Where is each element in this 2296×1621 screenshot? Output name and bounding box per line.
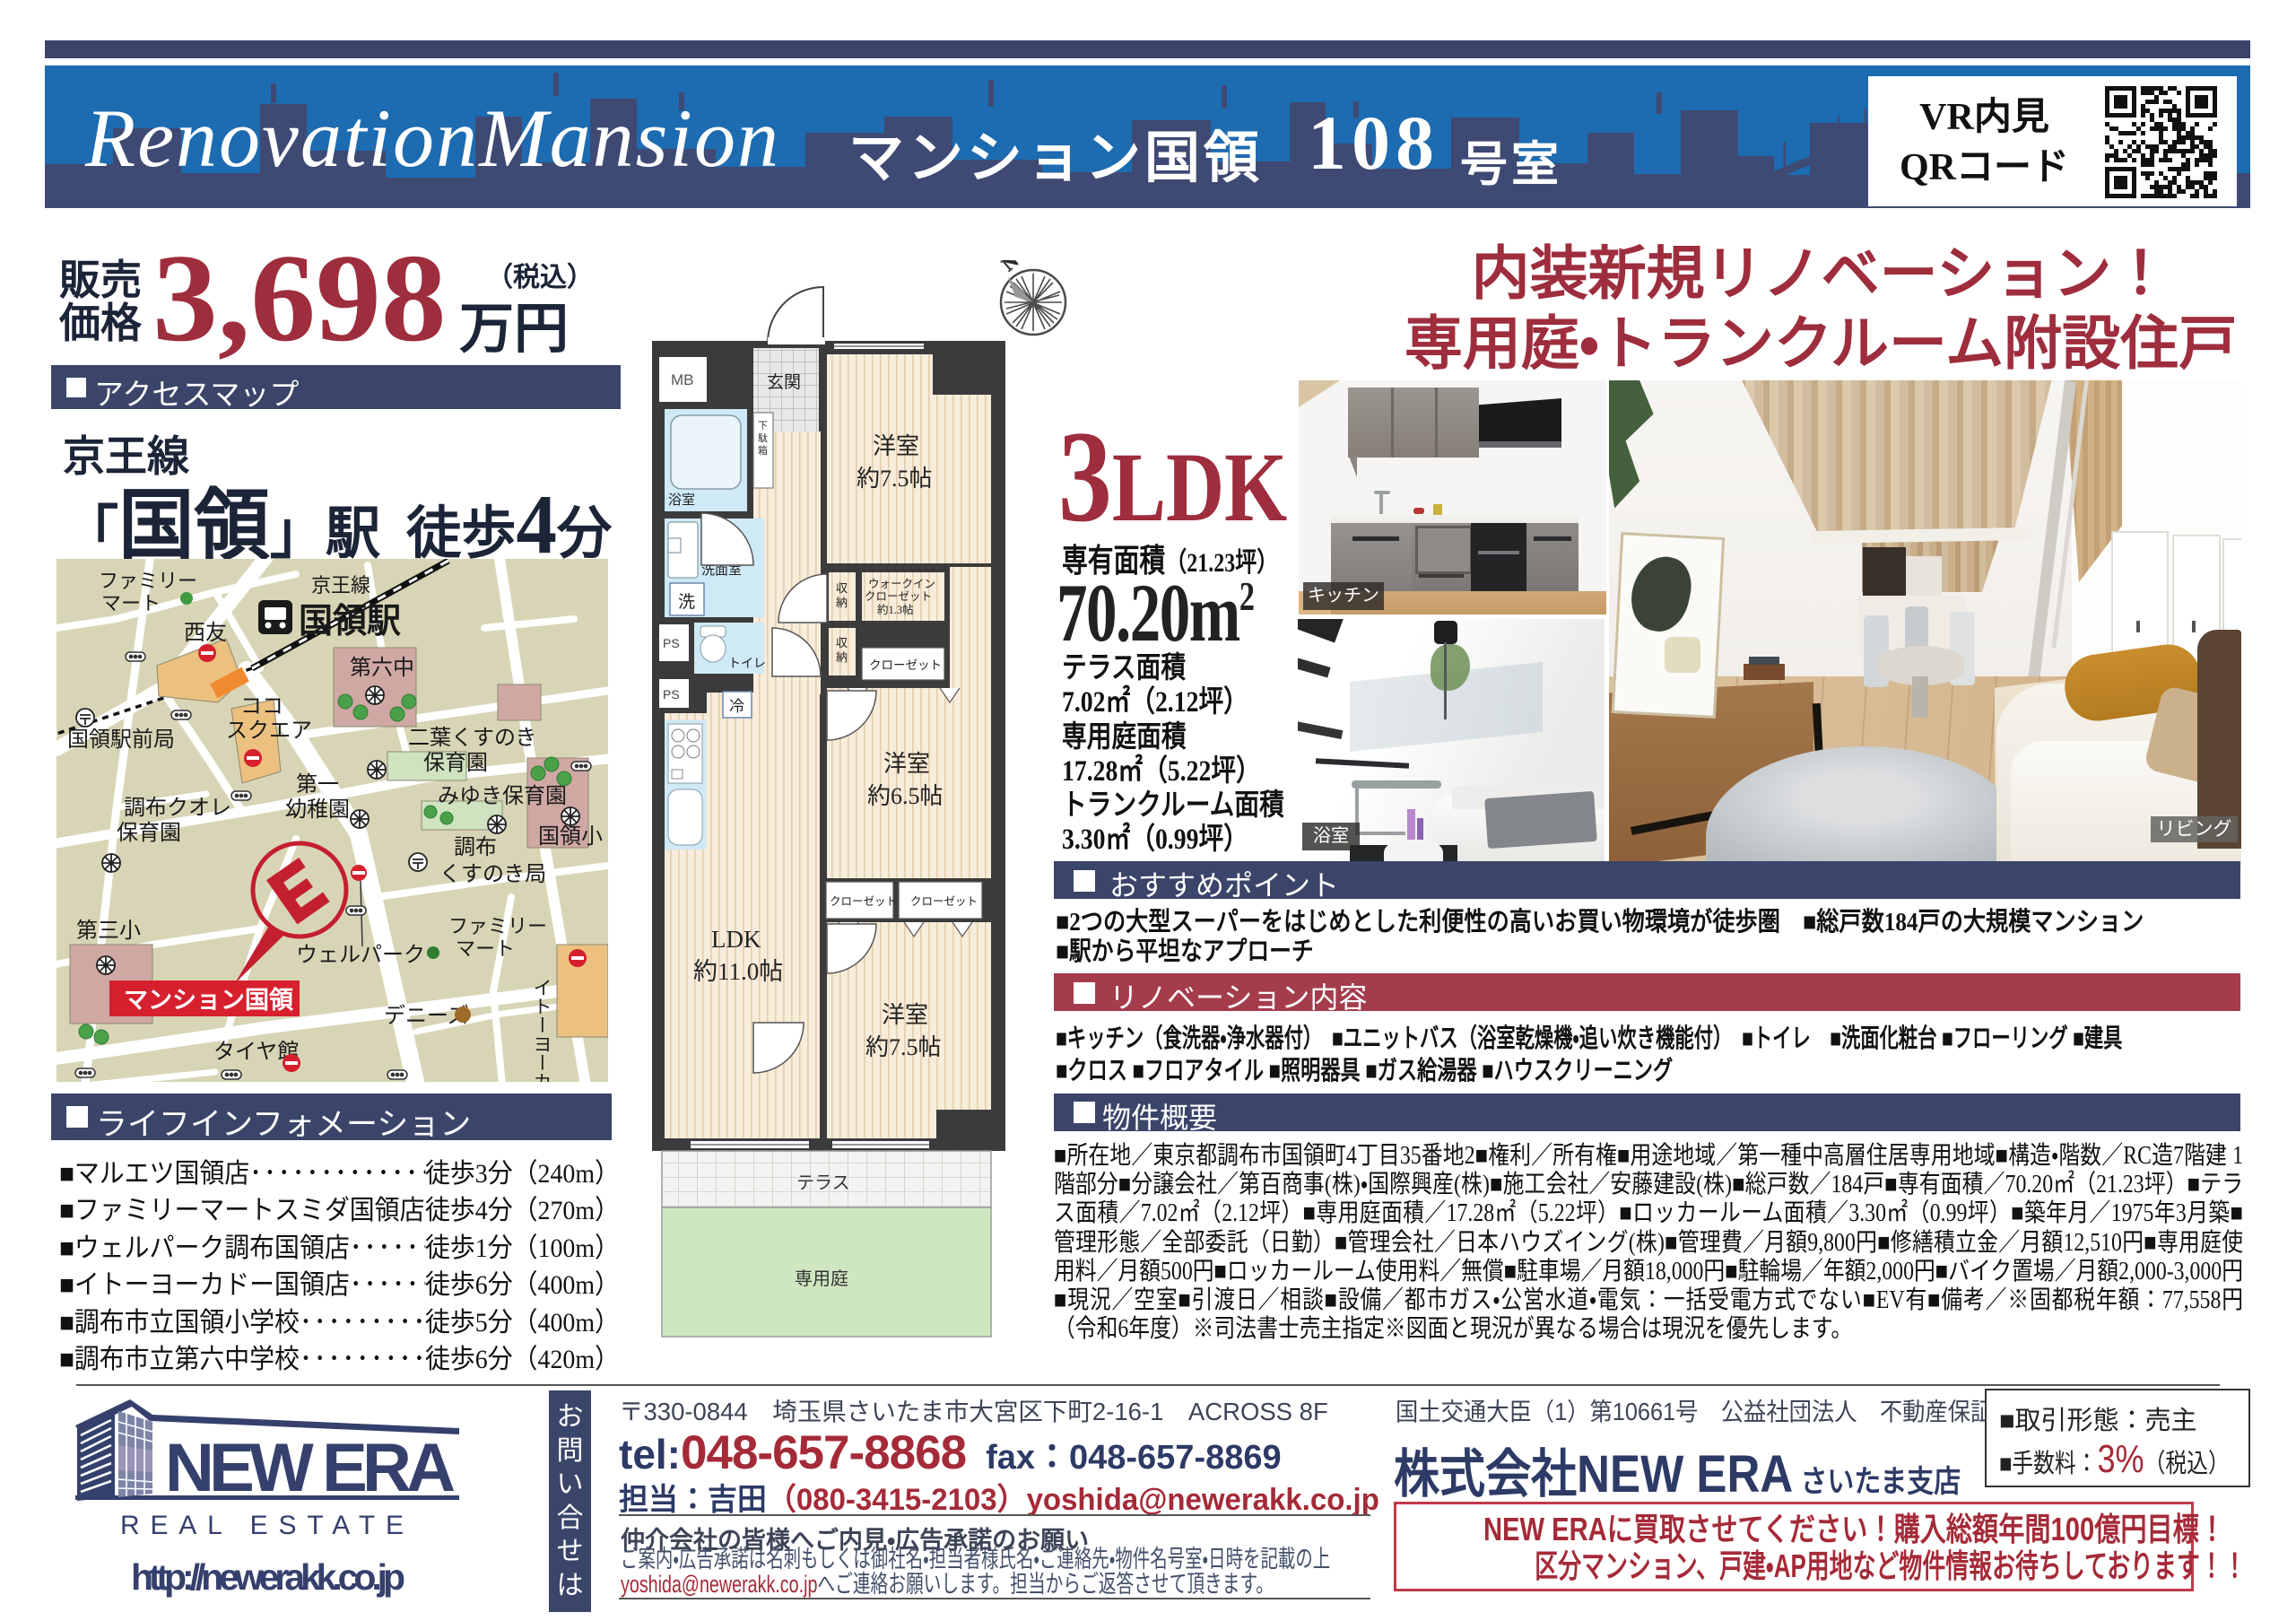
svg-text:下: 下: [758, 421, 768, 431]
svg-text:MB: MB: [671, 371, 694, 388]
svg-text:http://newerakk.co.jp: http://newerakk.co.jp: [131, 1556, 405, 1598]
svg-text:マンション国領: マンション国領: [124, 987, 294, 1014]
svg-text:クローゼット: クローゼット: [910, 895, 978, 908]
svg-text:洋室: 洋室: [882, 1002, 928, 1028]
svg-text:くすのき局: くすのき局: [439, 863, 546, 886]
svg-text:テラス: テラス: [796, 1173, 850, 1193]
svg-text:納: 納: [836, 596, 848, 609]
svg-text:第六中: 第六中: [350, 656, 414, 680]
svg-text:洋室: 洋室: [873, 433, 919, 459]
svg-text:調布: 調布: [454, 835, 497, 859]
svg-text:京王線: 京王線: [311, 574, 370, 597]
svg-text:国領小: 国領小: [538, 824, 603, 849]
svg-text:約1.3帖: 約1.3帖: [877, 603, 914, 616]
svg-text:クローゼット: クローゼット: [830, 895, 897, 908]
svg-text:箱: 箱: [758, 444, 768, 457]
svg-text:PS: PS: [663, 636, 680, 650]
svg-text:西友: 西友: [184, 621, 227, 645]
svg-text:保育園: 保育園: [117, 821, 181, 845]
svg-text:駄: 駄: [758, 431, 768, 444]
svg-text:玄関: 玄関: [767, 372, 801, 392]
svg-text:NEW ERA: NEW ERA: [165, 1430, 456, 1506]
svg-text:PS: PS: [663, 687, 680, 702]
svg-text:スクエア: スクエア: [226, 719, 312, 743]
svg-text:浴室: 浴室: [668, 492, 695, 508]
svg-text:みゆき保育園: みゆき保育園: [438, 784, 567, 808]
svg-text:トイレ: トイレ: [728, 658, 766, 671]
svg-text:約6.5帖: 約6.5帖: [867, 783, 944, 809]
svg-text:二葉くすのき: 二葉くすのき: [408, 726, 536, 750]
svg-text:国領駅前局: 国領駅前局: [67, 728, 175, 752]
svg-text:冷: 冷: [729, 698, 744, 715]
svg-text:国領駅: 国領駅: [299, 603, 401, 641]
svg-text:調布クオレ: 調布クオレ: [124, 796, 231, 820]
svg-text:マート: マート: [456, 937, 515, 960]
svg-text:LDK: LDK: [711, 926, 761, 953]
svg-text:クローゼット: クローゼット: [865, 590, 932, 603]
svg-text:第一: 第一: [296, 772, 339, 797]
svg-text:イトーヨーカドー: イトーヨーカドー: [531, 978, 552, 1082]
svg-text:クローゼット: クローゼット: [869, 658, 942, 672]
svg-text:ファミリー: ファミリー: [99, 570, 197, 592]
svg-text:幼稚園: 幼稚園: [285, 797, 350, 822]
svg-text:ココ: ココ: [240, 695, 283, 719]
svg-text:ウォークイン: ウォークイン: [868, 578, 935, 590]
svg-text:納: 納: [836, 650, 848, 664]
svg-text:約11.0帖: 約11.0帖: [693, 958, 783, 985]
svg-text:ファミリー: ファミリー: [448, 915, 547, 937]
svg-text:保育園: 保育園: [423, 751, 488, 775]
svg-text:約7.5帖: 約7.5帖: [857, 466, 933, 492]
svg-text:約7.5帖: 約7.5帖: [865, 1034, 942, 1060]
svg-text:洗: 洗: [678, 592, 695, 612]
svg-text:ウェルパーク: ウェルパーク: [296, 944, 425, 967]
svg-text:第三小: 第三小: [76, 919, 141, 943]
svg-text:洋室: 洋室: [883, 751, 930, 777]
svg-text:収: 収: [836, 581, 848, 595]
svg-text:REAL ESTATE: REAL ESTATE: [120, 1511, 416, 1540]
svg-text:収: 収: [836, 636, 848, 649]
svg-text:マート: マート: [101, 592, 161, 614]
svg-text:専用庭: 専用庭: [795, 1268, 848, 1289]
